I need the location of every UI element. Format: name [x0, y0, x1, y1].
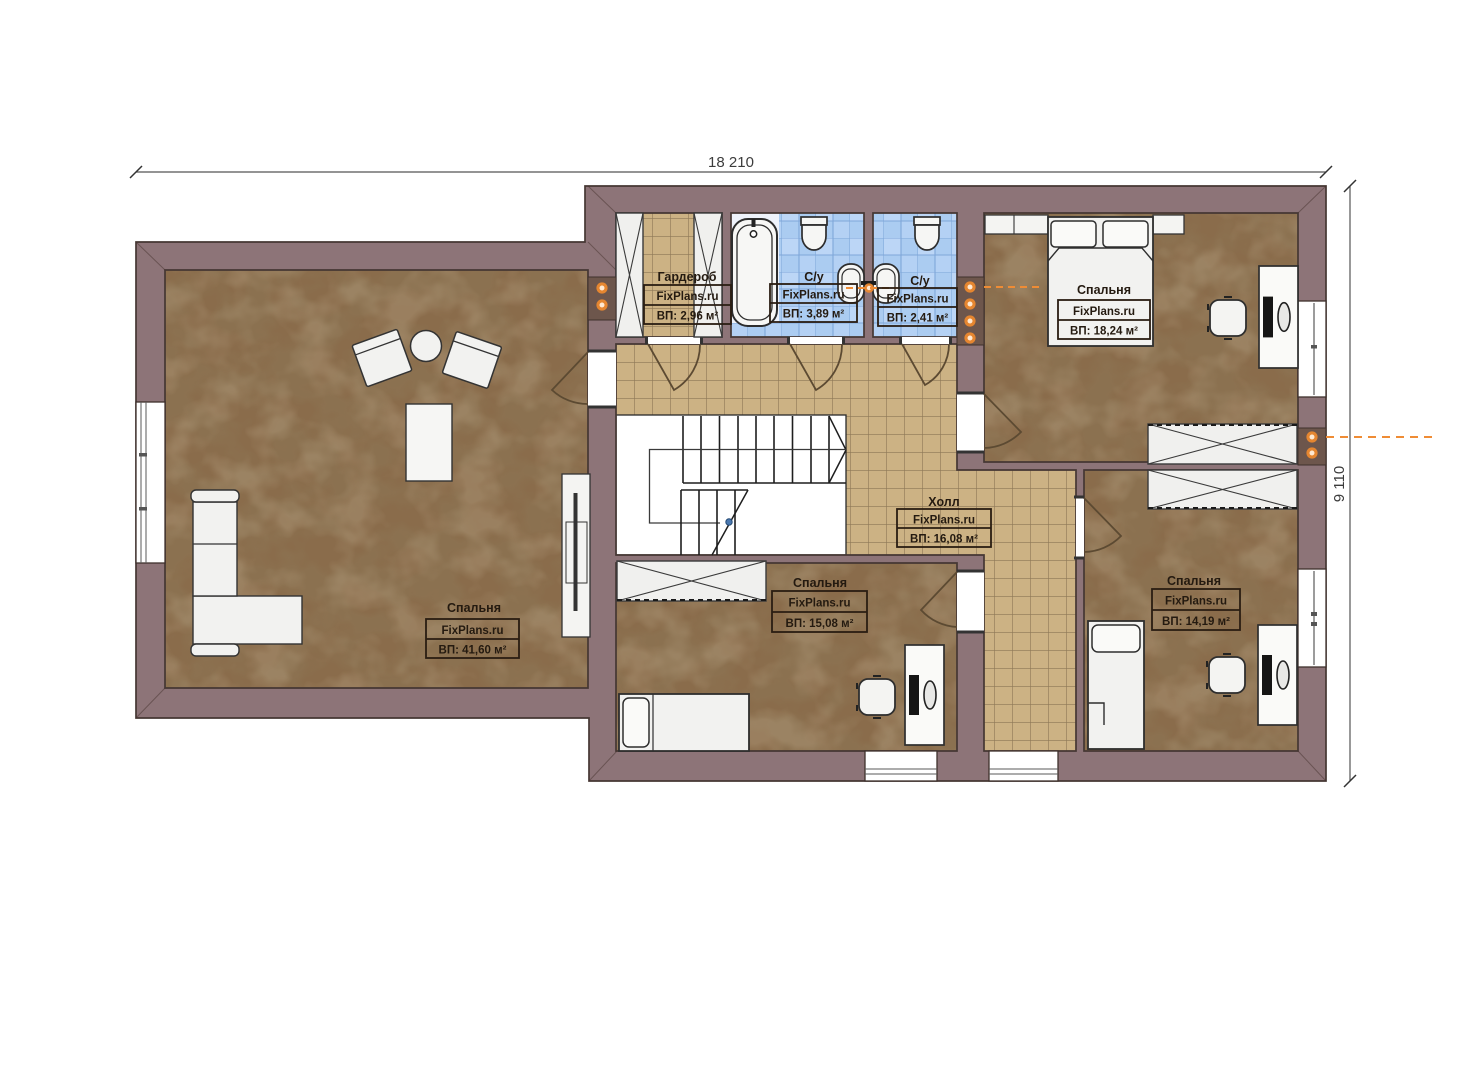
svg-text:FixPlans.ru: FixPlans.ru [783, 290, 845, 302]
svg-text:ВП: 3,89 м²: ВП: 3,89 м² [783, 309, 845, 321]
svg-text:Спальня: Спальня [1167, 574, 1221, 588]
svg-text:ВП: 18,24 м²: ВП: 18,24 м² [1070, 326, 1138, 338]
svg-text:FixPlans.ru: FixPlans.ru [442, 625, 504, 637]
svg-text:С/у: С/у [910, 274, 930, 288]
svg-text:ВП: 41,60 м²: ВП: 41,60 м² [439, 645, 507, 657]
svg-text:ВП: 2,41 м²: ВП: 2,41 м² [887, 313, 949, 325]
svg-text:FixPlans.ru: FixPlans.ru [913, 515, 975, 527]
svg-text:FixPlans.ru: FixPlans.ru [657, 291, 719, 303]
svg-text:Гардероб: Гардероб [657, 270, 716, 284]
svg-text:FixPlans.ru: FixPlans.ru [887, 294, 949, 306]
svg-text:FixPlans.ru: FixPlans.ru [1073, 306, 1135, 318]
svg-text:ВП: 2,96 м²: ВП: 2,96 м² [657, 311, 719, 323]
svg-text:FixPlans.ru: FixPlans.ru [789, 598, 851, 610]
svg-text:9 110: 9 110 [1331, 466, 1348, 502]
svg-text:Спальня: Спальня [1077, 283, 1131, 297]
svg-text:ВП: 16,08 м²: ВП: 16,08 м² [910, 534, 978, 546]
svg-text:Спальня: Спальня [793, 576, 847, 590]
svg-text:Спальня: Спальня [447, 601, 501, 615]
svg-text:ВП: 15,08 м²: ВП: 15,08 м² [786, 618, 854, 630]
svg-text:ВП: 14,19 м²: ВП: 14,19 м² [1162, 616, 1230, 628]
svg-text:С/у: С/у [804, 270, 824, 284]
svg-text:Холл: Холл [928, 495, 959, 509]
svg-text:18 210: 18 210 [708, 154, 754, 171]
svg-text:FixPlans.ru: FixPlans.ru [1165, 596, 1227, 608]
